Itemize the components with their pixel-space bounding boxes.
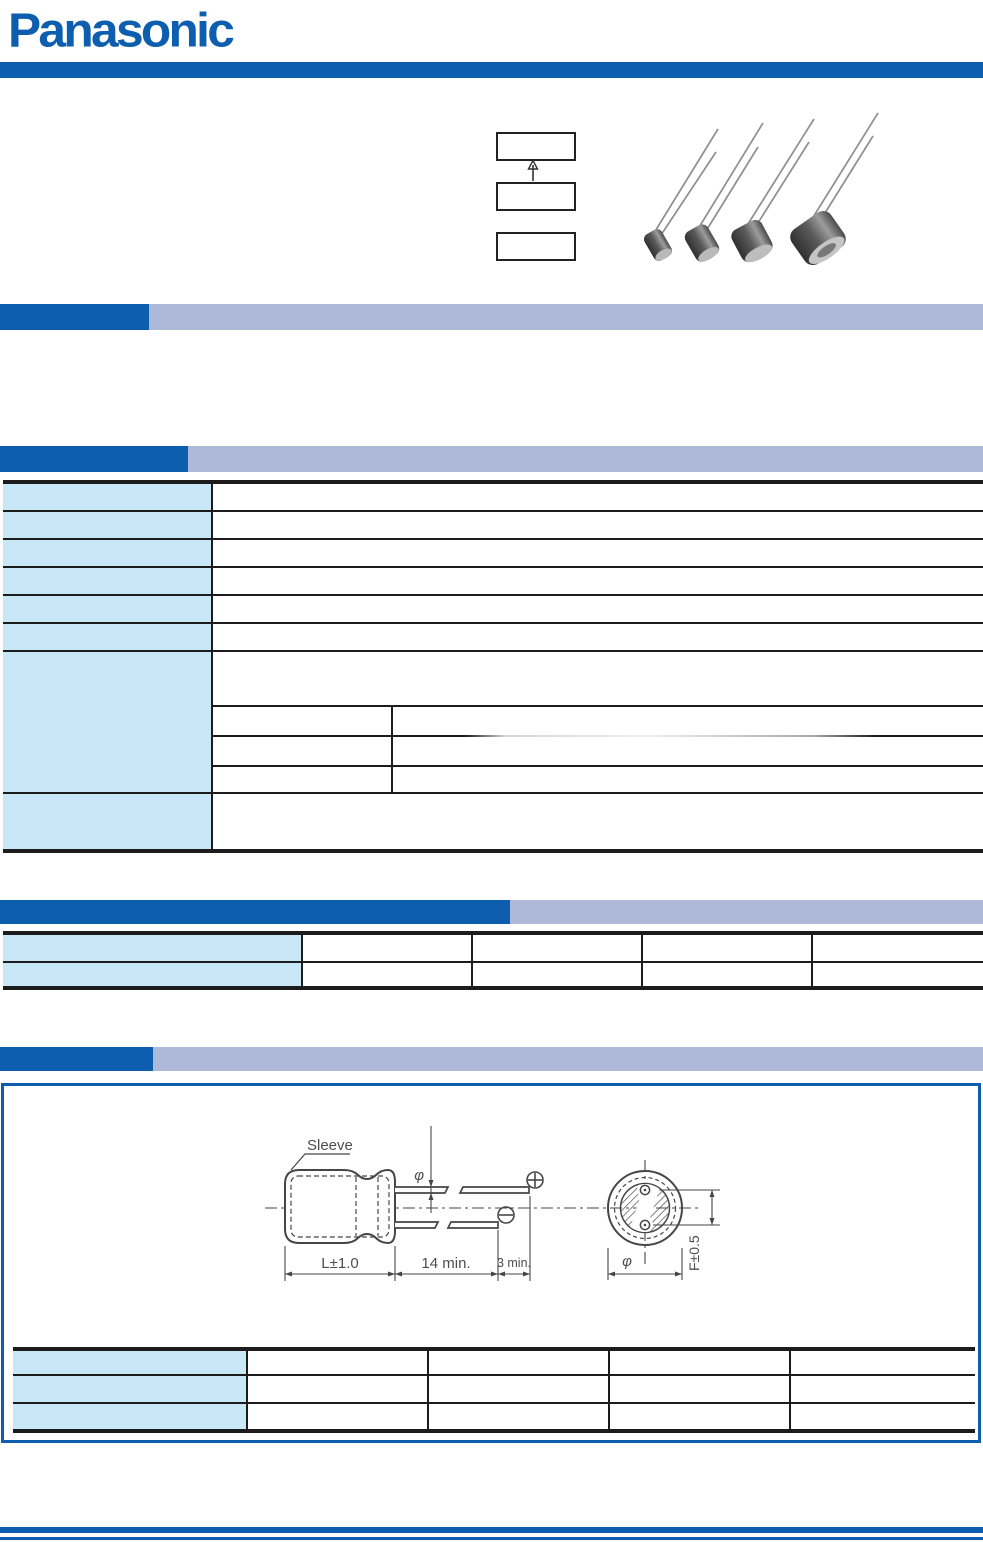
table-border (3, 480, 983, 484)
table-divider (427, 1351, 429, 1430)
section-2-header-dark (0, 446, 188, 472)
subtable-border (213, 705, 983, 707)
table-divider (608, 1351, 610, 1430)
minus-polarity-icon (498, 1207, 514, 1223)
lead-length-dimension-label: 14 min. (421, 1255, 470, 1272)
footer-rule-2 (0, 1537, 983, 1540)
table-border (3, 961, 983, 963)
section-1-header-light (149, 304, 983, 330)
section-3-header-dark (0, 900, 510, 924)
table-border (13, 1374, 975, 1376)
faded-border-artifact (465, 735, 875, 737)
table-border (13, 1402, 975, 1404)
subtable-divider (391, 705, 393, 794)
table-divider (301, 935, 303, 987)
section-2-header-light (188, 446, 983, 472)
table-border (3, 986, 983, 990)
table-divider (211, 480, 213, 853)
section-1-header-dark (0, 304, 149, 330)
table-border (3, 538, 983, 540)
table-border (3, 792, 983, 794)
part-number-box-3 (496, 232, 576, 261)
part-number-box-1 (496, 132, 576, 161)
dimensions-drawing: Sleeve φ L±1.0 14 min. 3 min. φ F±0.5 (250, 1108, 770, 1308)
length-dimension-label: L±1.0 (321, 1255, 358, 1272)
lead-spacing-dimension-label: F±0.5 (686, 1235, 702, 1271)
table-border (3, 594, 983, 596)
table-divider (471, 935, 473, 987)
table-border (3, 650, 983, 652)
table-border (3, 622, 983, 624)
table-border (3, 849, 983, 853)
sleeve-label: Sleeve (307, 1137, 353, 1154)
table-border (3, 566, 983, 568)
section-4-header-dark (0, 1047, 153, 1071)
lead-tip-dimension-label: 3 min. (497, 1256, 531, 1270)
header-rule (0, 62, 983, 78)
case-diameter-symbol: φ (622, 1253, 632, 1270)
capacitor-leads (654, 113, 878, 235)
table-divider (246, 1351, 248, 1430)
part-number-box-2 (496, 182, 576, 211)
datasheet-page: Panasonic (0, 0, 983, 1542)
table-divider (641, 935, 643, 987)
table-divider (789, 1351, 791, 1430)
dimensions-label-column (13, 1351, 246, 1430)
table-divider (811, 935, 813, 987)
sleeve-leader-line (291, 1154, 350, 1170)
up-arrow-icon (524, 160, 542, 182)
lead-diameter-symbol: φ (414, 1167, 424, 1184)
table-border (3, 510, 983, 512)
section-4-header-light (153, 1047, 983, 1071)
plus-polarity-icon (527, 1172, 543, 1188)
subtable-border (213, 765, 983, 767)
footer-rule-1 (0, 1527, 983, 1533)
section-3-header-light (510, 900, 983, 924)
table-border (13, 1429, 975, 1433)
panasonic-logo: Panasonic (8, 2, 232, 58)
product-photo (610, 105, 955, 280)
